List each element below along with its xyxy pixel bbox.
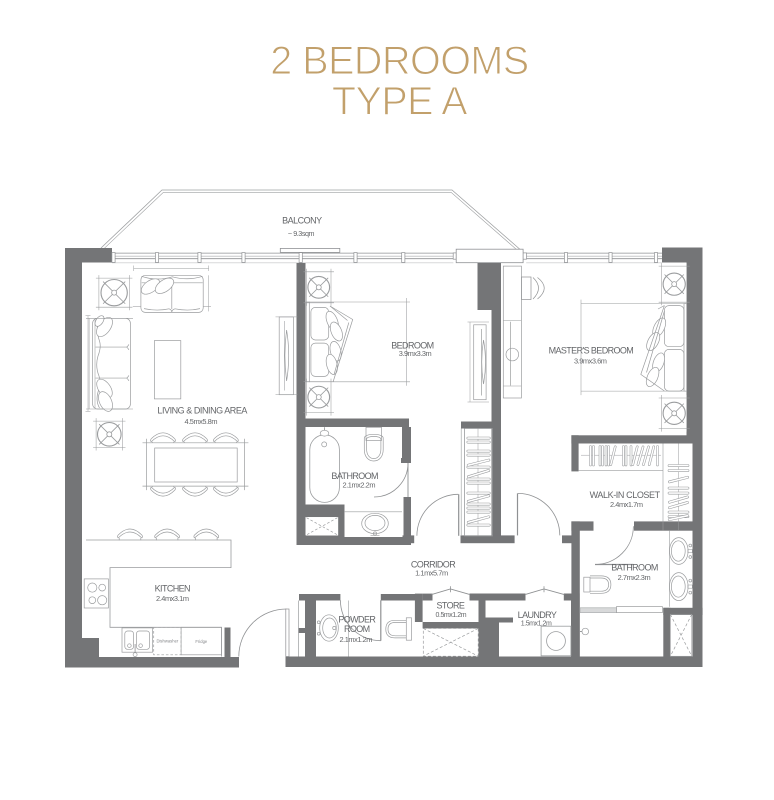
svg-text:4.5mx5.8m: 4.5mx5.8m: [185, 417, 218, 426]
svg-text:2.7mx2.3m: 2.7mx2.3m: [618, 573, 651, 582]
svg-text:POWDER: POWDER: [338, 614, 376, 624]
svg-text:STORE: STORE: [436, 601, 464, 611]
svg-text:2.4mx1.7m: 2.4mx1.7m: [610, 500, 643, 509]
svg-text:MASTER'S BEDROOM: MASTER'S BEDROOM: [549, 346, 634, 356]
svg-text:Fridge: Fridge: [195, 639, 208, 644]
svg-text:KITCHEN: KITCHEN: [155, 584, 190, 594]
svg-text:2.1mx2.2m: 2.1mx2.2m: [343, 480, 376, 489]
svg-text:3.9mx3.3m: 3.9mx3.3m: [399, 349, 432, 358]
svg-text:Dishwasher: Dishwasher: [156, 639, 178, 644]
svg-text:TYPE A: TYPE A: [332, 80, 468, 124]
svg-text:LIVING & DINING AREA: LIVING & DINING AREA: [157, 406, 247, 416]
svg-text:2.1mx1.2m: 2.1mx1.2m: [339, 635, 372, 644]
svg-text:LAUNDRY: LAUNDRY: [518, 610, 557, 620]
svg-text:2.4mx3.1m: 2.4mx3.1m: [156, 594, 189, 603]
svg-text:2 BEDROOMS: 2 BEDROOMS: [270, 39, 528, 83]
svg-text:ROOM: ROOM: [344, 624, 370, 634]
svg-text:3.9mx3.6m: 3.9mx3.6m: [574, 356, 607, 365]
svg-text:~ 9.3sqm: ~ 9.3sqm: [288, 229, 315, 238]
svg-text:0.5mx1.2m: 0.5mx1.2m: [436, 612, 467, 619]
svg-text:WALK-IN CLOSET: WALK-IN CLOSET: [590, 490, 661, 500]
svg-text:BATHROOM: BATHROOM: [611, 563, 658, 573]
svg-text:BALCONY: BALCONY: [282, 216, 322, 226]
svg-text:1.1mx5.7m: 1.1mx5.7m: [415, 568, 448, 577]
